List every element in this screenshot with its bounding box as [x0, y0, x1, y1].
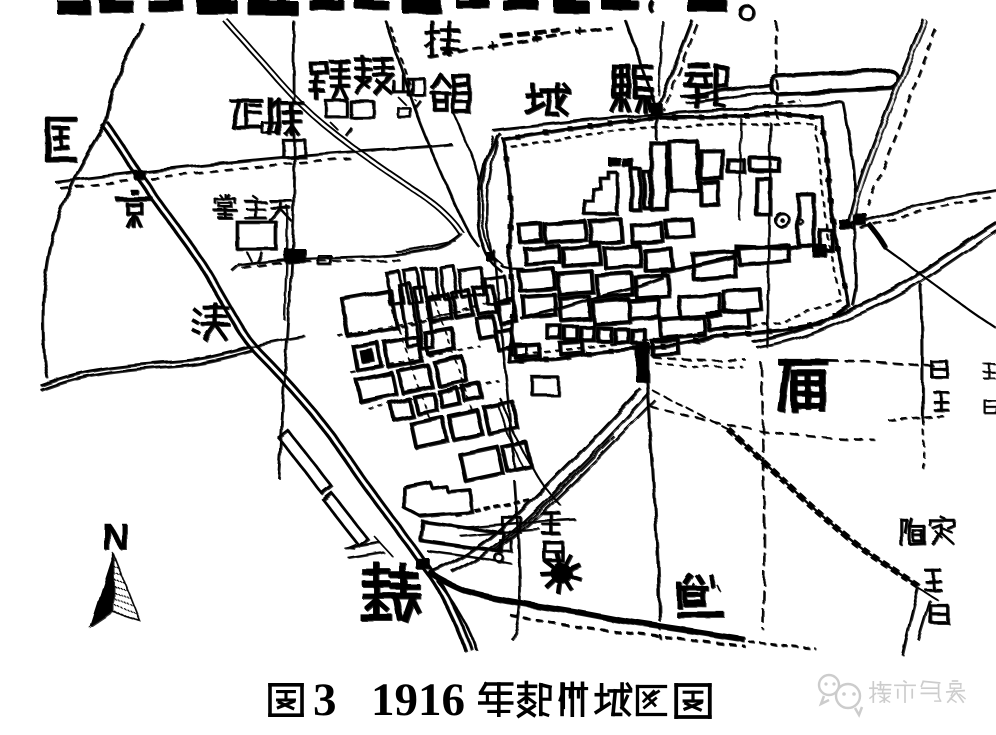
svg-text:1916: 1916: [371, 674, 465, 726]
svg-text:3: 3: [313, 674, 337, 726]
